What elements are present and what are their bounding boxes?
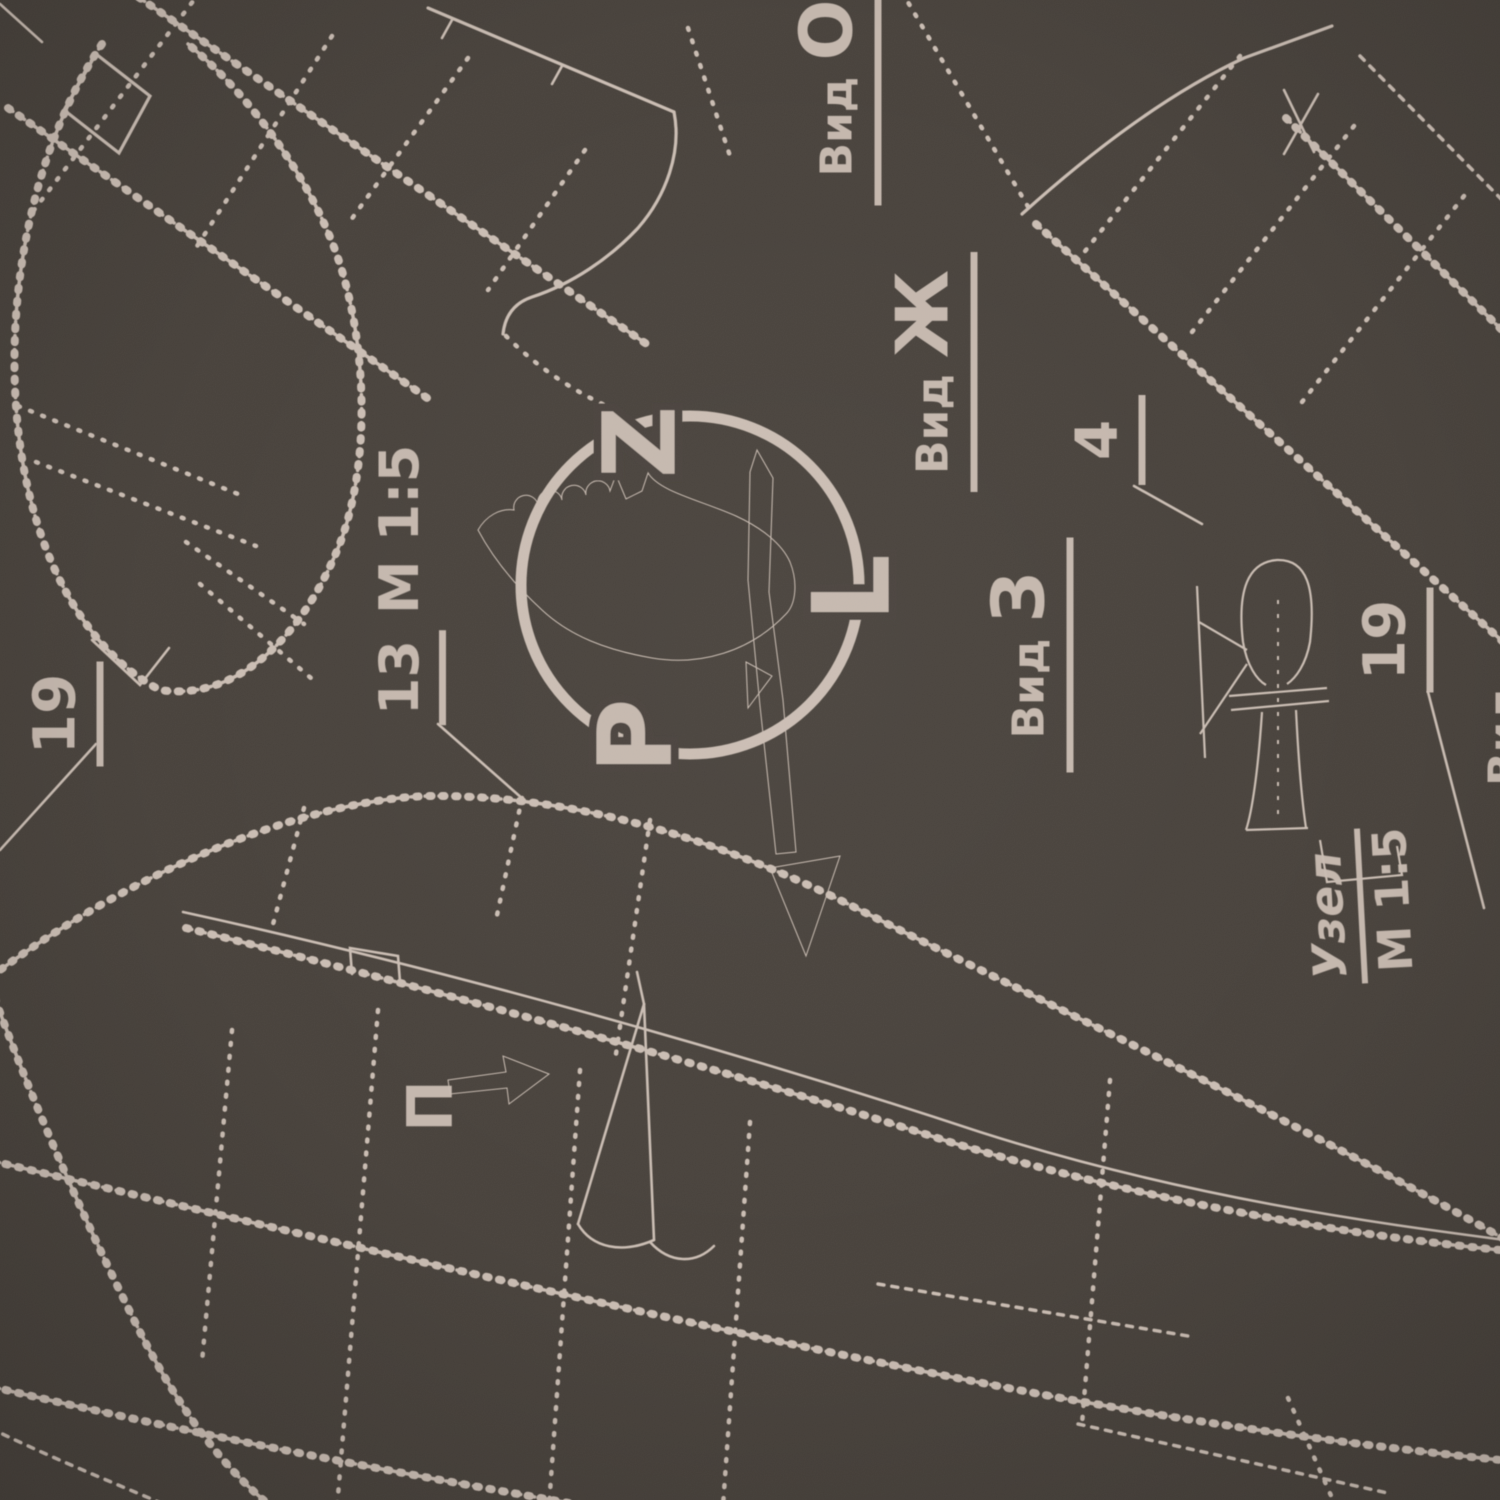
vid-o-letter: О xyxy=(799,0,857,61)
label-vid-o: Вид О xyxy=(799,0,882,206)
callout-scale: М 1:5 xyxy=(368,445,431,614)
label-number-19-left: 19 xyxy=(21,662,104,767)
blueprint-linework: Z L P xyxy=(0,0,1500,1500)
blueprint-pattern: Z L P Вид О Вид Ж Вид З 13 М 1:5 Узел М … xyxy=(0,0,1500,1500)
label-uzel: Узел М 1:5 xyxy=(1296,825,1424,986)
vid-zh-letter: Ж xyxy=(895,270,953,358)
vid-zh-word: Вид xyxy=(908,374,959,474)
uzel-word: Узел xyxy=(1296,828,1368,986)
label-vid-zh: Вид Ж xyxy=(895,252,978,492)
paper-grain-overlay xyxy=(0,0,1500,1500)
vid-z-word: Вид xyxy=(1004,639,1055,739)
label-vid-z: Вид З xyxy=(991,538,1074,773)
vid-z-letter: З xyxy=(991,571,1049,622)
vid-o-word: Вид xyxy=(812,77,863,177)
label-marker-p: П xyxy=(394,1080,467,1132)
label-number-19-right: 19 xyxy=(1351,588,1434,693)
uzel-scale: М 1:5 xyxy=(1362,825,1424,983)
label-scale-13: 13 М 1:5 xyxy=(368,445,446,725)
label-vid-partial: Вид xyxy=(1480,678,1500,794)
callout-number: 13 xyxy=(368,630,446,725)
label-number-4: 4 xyxy=(1063,395,1146,485)
